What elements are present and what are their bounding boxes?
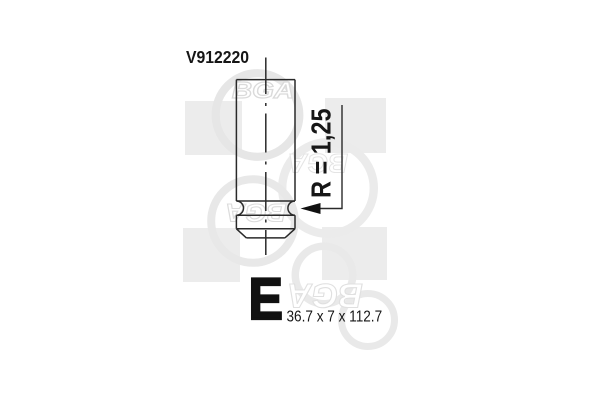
svg-text:BGA: BGA (232, 78, 294, 103)
svg-text:E: E (249, 266, 283, 331)
svg-text:V912220: V912220 (186, 47, 249, 67)
svg-text:R = 1,25: R = 1,25 (307, 108, 337, 198)
svg-text:BGA: BGA (225, 198, 286, 227)
svg-text:36.7 x 7 x 112.7: 36.7 x 7 x 112.7 (287, 309, 383, 326)
